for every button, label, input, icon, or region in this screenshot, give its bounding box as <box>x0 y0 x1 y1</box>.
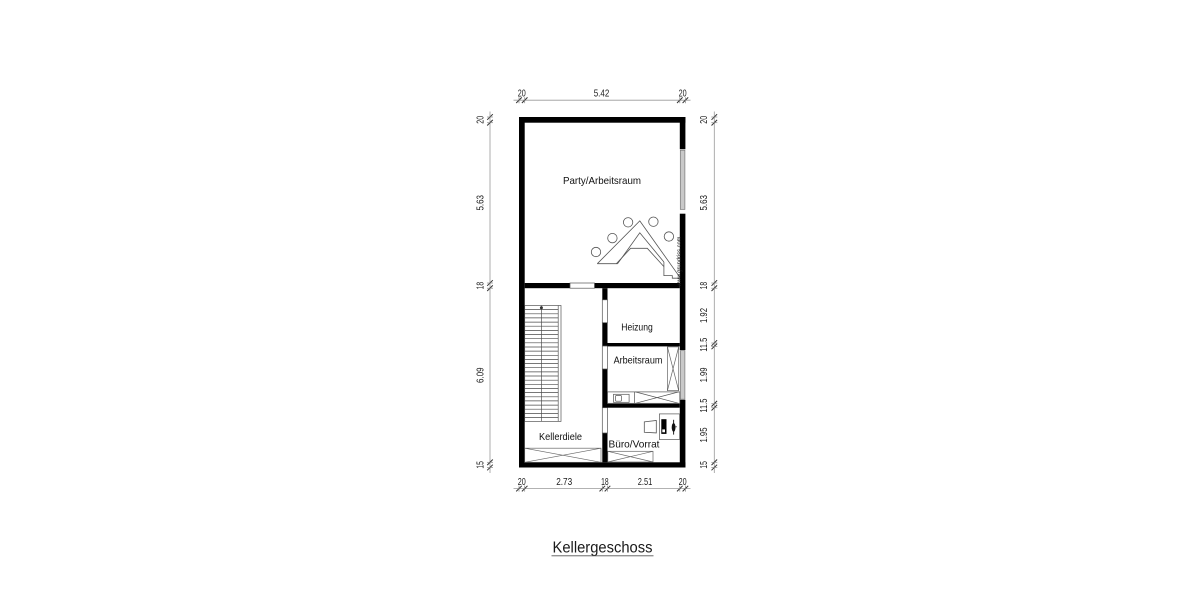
svg-text:20: 20 <box>518 476 526 488</box>
svg-text:20: 20 <box>698 116 710 124</box>
svg-text:15: 15 <box>475 461 487 469</box>
svg-text:1.95: 1.95 <box>698 427 710 442</box>
svg-text:2.51: 2.51 <box>638 476 653 488</box>
svg-text:Kellergeschoss: Kellergeschoss <box>553 540 653 557</box>
svg-text:1.99: 1.99 <box>698 367 710 382</box>
svg-text:Party/Arbeitsraum: Party/Arbeitsraum <box>563 175 641 187</box>
svg-text:www.grundriss.com: www.grundriss.com <box>676 237 683 288</box>
svg-text:5.63: 5.63 <box>698 195 710 211</box>
svg-text:Büro/Vorrat: Büro/Vorrat <box>609 439 660 451</box>
svg-text:Kellerdiele: Kellerdiele <box>539 431 582 443</box>
svg-text:15: 15 <box>698 461 710 469</box>
svg-text:20: 20 <box>475 116 487 124</box>
svg-text:18: 18 <box>475 282 487 290</box>
svg-text:Arbeitsraum: Arbeitsraum <box>614 355 663 367</box>
svg-text:20: 20 <box>518 88 526 100</box>
svg-text:2.73: 2.73 <box>556 476 572 488</box>
svg-text:Heizung: Heizung <box>621 322 653 334</box>
svg-text:11.5: 11.5 <box>698 398 710 412</box>
svg-text:20: 20 <box>679 88 687 100</box>
svg-text:1.92: 1.92 <box>698 308 710 323</box>
svg-text:5.42: 5.42 <box>594 88 610 100</box>
svg-text:5.63: 5.63 <box>475 195 487 211</box>
svg-text:18: 18 <box>601 476 609 488</box>
svg-text:6.09: 6.09 <box>475 367 487 383</box>
svg-text:18: 18 <box>698 282 710 290</box>
svg-text:20: 20 <box>679 476 687 488</box>
svg-text:11.5: 11.5 <box>698 338 710 352</box>
